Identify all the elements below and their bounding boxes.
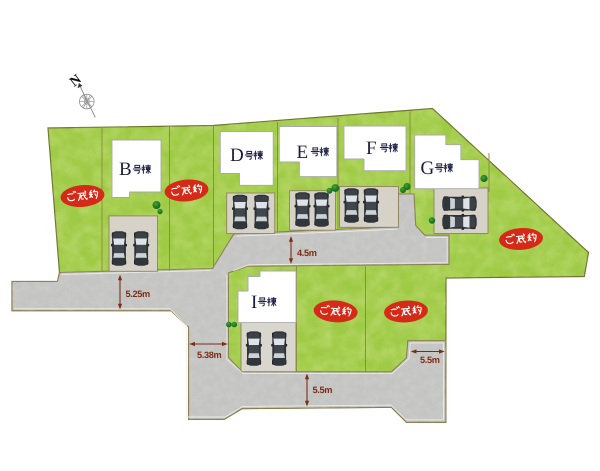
svg-text:F: F [366, 138, 377, 159]
svg-text:D: D [230, 145, 244, 166]
svg-text:I: I [251, 292, 257, 313]
svg-text:5.5m: 5.5m [420, 355, 440, 365]
svg-text:5.25m: 5.25m [126, 289, 150, 299]
svg-text:5.5m: 5.5m [313, 385, 333, 395]
svg-text:4.5m: 4.5m [297, 248, 317, 258]
svg-text:E: E [297, 142, 309, 163]
svg-text:5.38m: 5.38m [197, 350, 221, 360]
svg-text:N: N [67, 72, 84, 90]
svg-text:B: B [119, 159, 132, 180]
svg-text:G: G [421, 158, 435, 179]
